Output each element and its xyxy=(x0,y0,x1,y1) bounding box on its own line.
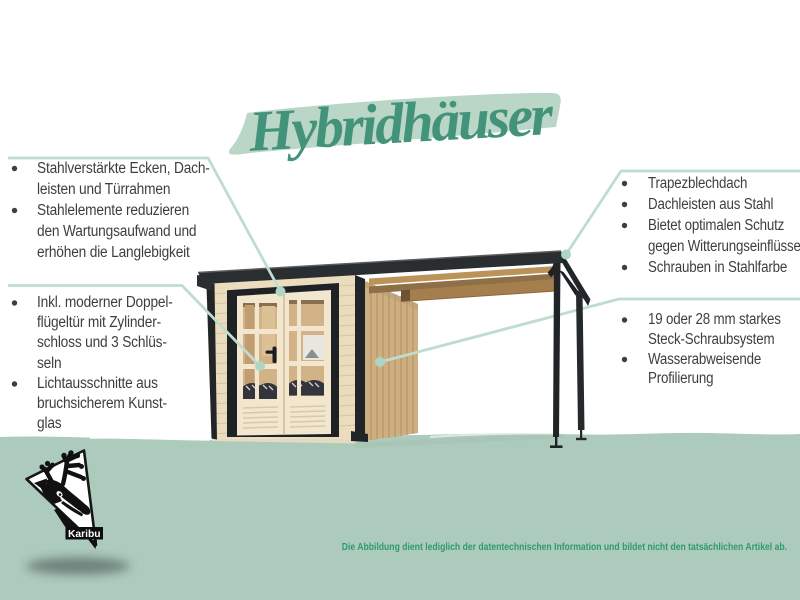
svg-text:Hybridhäuser: Hybridhäuser xyxy=(246,82,555,164)
svg-text:Karibu: Karibu xyxy=(68,529,101,540)
